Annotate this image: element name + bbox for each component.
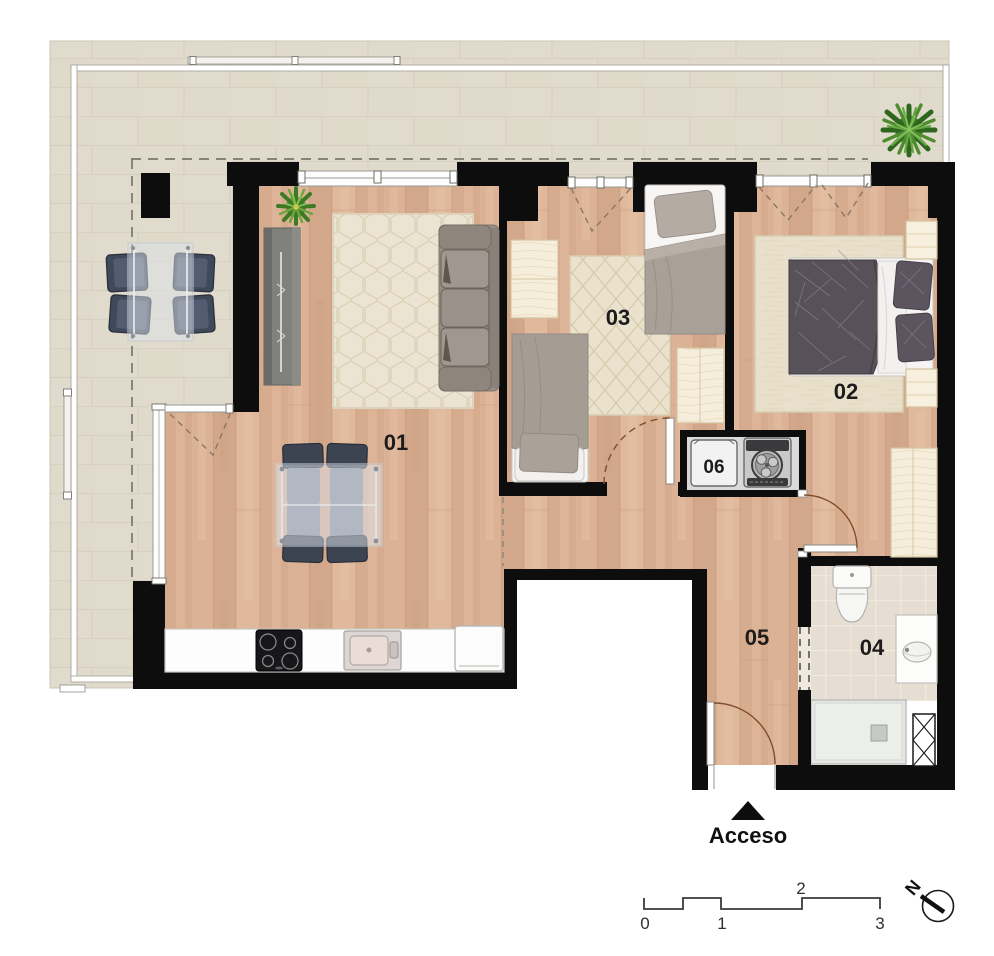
- svg-text:04: 04: [860, 635, 885, 660]
- svg-text:01: 01: [384, 430, 408, 455]
- svg-text:Acceso: Acceso: [709, 823, 787, 848]
- svg-text:03: 03: [606, 305, 630, 330]
- svg-text:05: 05: [745, 625, 769, 650]
- svg-text:2: 2: [796, 879, 805, 898]
- svg-text:0: 0: [640, 914, 649, 933]
- svg-text:3: 3: [875, 914, 884, 933]
- svg-text:1: 1: [717, 914, 726, 933]
- svg-text:06: 06: [703, 457, 724, 478]
- svg-text:02: 02: [834, 379, 858, 404]
